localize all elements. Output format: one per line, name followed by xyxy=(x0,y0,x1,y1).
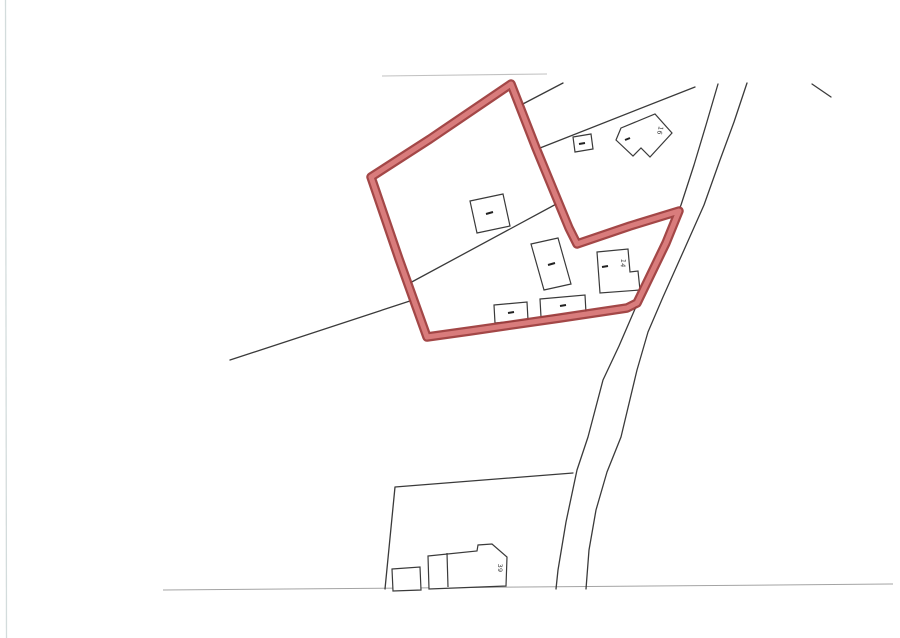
building-center-mark xyxy=(602,266,608,267)
site-plan-map: 16 14 39 xyxy=(0,0,900,638)
parcel-line-upper-short xyxy=(519,83,563,106)
house-number-39-label: 39 xyxy=(496,564,504,573)
faint-top-boundary-line xyxy=(382,74,547,76)
building-center-mark xyxy=(579,143,585,144)
house-number-14-label: 14 xyxy=(619,259,628,268)
building-labels: 16 14 39 xyxy=(496,125,665,572)
parcel-line-stub-topright xyxy=(812,84,831,97)
parcel-line-southwest xyxy=(230,299,416,360)
printed-parcel-lines xyxy=(230,83,831,589)
scanned-page: 16 14 39 xyxy=(0,0,900,638)
building-center-mark xyxy=(560,305,566,306)
highlighted-parcel xyxy=(371,84,679,337)
building-notched-house-14 xyxy=(597,249,640,293)
building-footprints xyxy=(392,114,672,591)
road-edge-right xyxy=(586,83,747,589)
building-bottom-square xyxy=(392,567,421,591)
road-edge-left xyxy=(556,84,718,589)
bottom-boundary-line xyxy=(163,584,893,590)
building-center-mark xyxy=(508,312,514,313)
scan-edge-artifact xyxy=(6,0,7,638)
building-bottom-long-house-39 xyxy=(428,544,507,589)
